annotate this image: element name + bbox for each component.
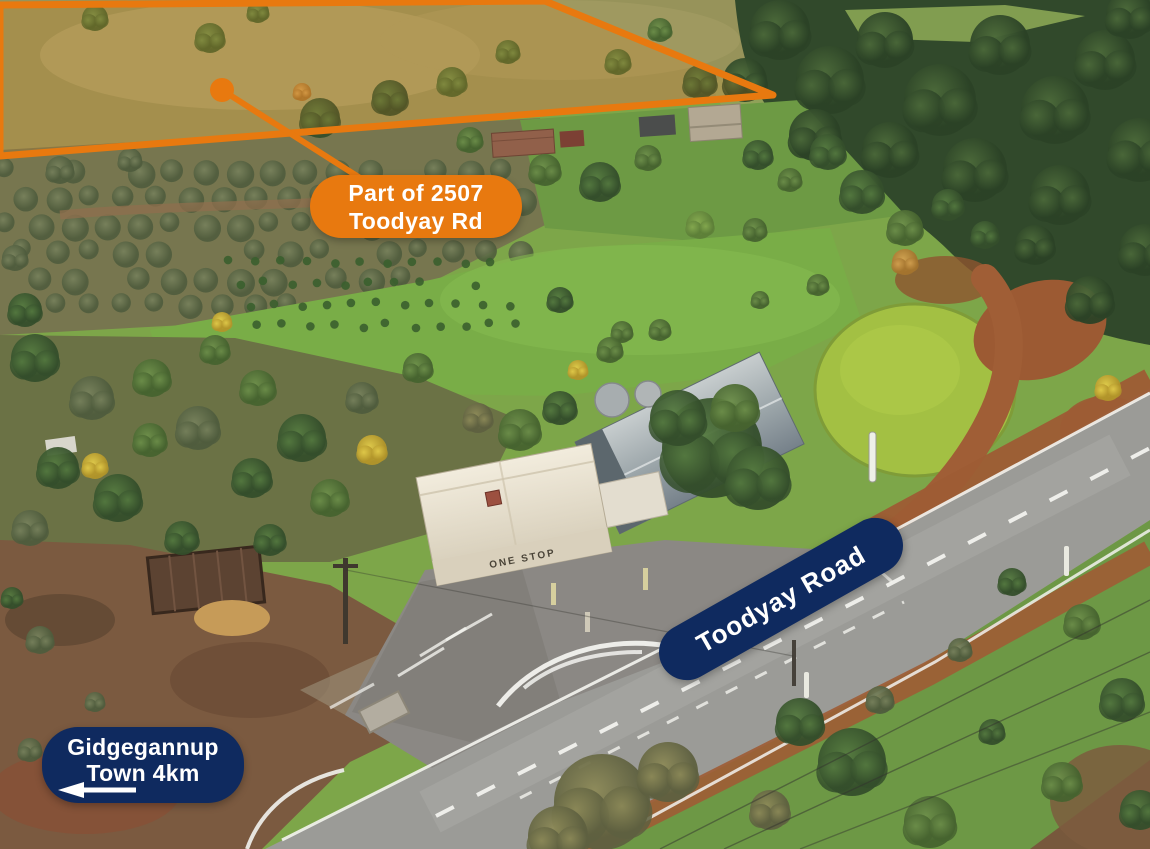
boundary-marker-dot: [210, 78, 234, 102]
left-arrow-icon: [58, 782, 138, 798]
property-label-line1: Part of 2507: [310, 179, 522, 207]
boundary-polygon: [0, 1, 773, 156]
direction-label: Gidgegannup Town 4km: [42, 727, 244, 803]
aerial-photo: ONE STOP: [0, 0, 1150, 849]
property-label: Part of 2507 Toodyay Rd: [310, 175, 522, 238]
direction-label-line1: Gidgegannup: [42, 734, 244, 760]
property-boundary-overlay: [0, 0, 1150, 849]
property-label-line2: Toodyay Rd: [310, 207, 522, 235]
